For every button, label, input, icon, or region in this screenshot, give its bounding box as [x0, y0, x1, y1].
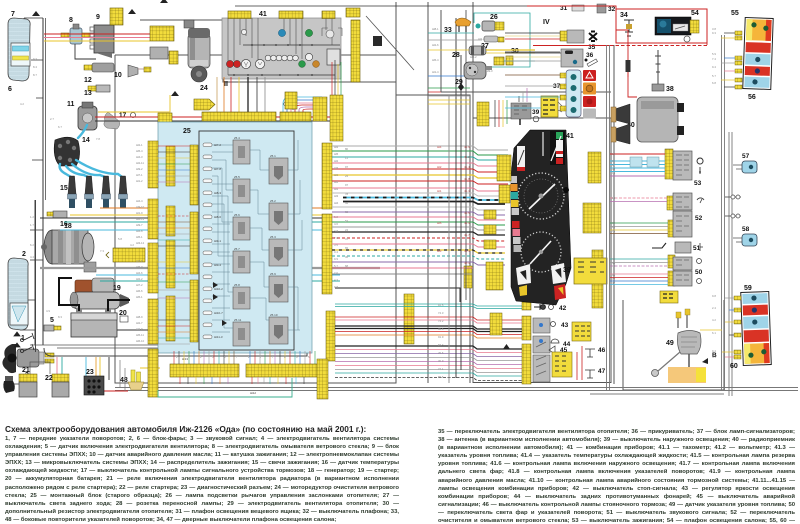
- svg-text:Ш8-3: Ш8-3: [214, 191, 221, 195]
- svg-text:77.1: 77.1: [438, 367, 444, 371]
- svg-text:28: 28: [452, 52, 460, 59]
- svg-text:24: 24: [345, 228, 349, 232]
- svg-text:15: 15: [60, 185, 68, 192]
- svg-text:Ш3: Ш3: [334, 166, 339, 170]
- svg-text:Ш12: Ш12: [250, 391, 256, 395]
- svg-text:51: 51: [693, 245, 701, 252]
- svg-text:59: 59: [744, 285, 752, 292]
- svg-text:10.5: 10.5: [438, 303, 444, 307]
- svg-text:Ш4: Ш4: [437, 145, 442, 149]
- svg-text:43: 43: [561, 322, 569, 329]
- svg-text:3.5: 3.5: [334, 243, 338, 247]
- svg-text:11: 11: [345, 156, 348, 160]
- svg-text:Ш2-1: Ш2-1: [136, 143, 143, 147]
- svg-text:3.4: 3.4: [334, 250, 338, 254]
- svg-text:12: 12: [84, 77, 92, 84]
- svg-text:57: 57: [742, 153, 750, 160]
- svg-text:49: 49: [666, 340, 674, 347]
- svg-text:Ш10-7: Ш10-7: [214, 311, 223, 315]
- svg-text:4.2: 4.2: [20, 102, 24, 106]
- svg-text:29.6: 29.6: [438, 351, 444, 355]
- svg-text:5.8: 5.8: [118, 237, 122, 241]
- svg-text:38: 38: [666, 86, 674, 93]
- svg-text:Ш4-6: Ш4-6: [136, 271, 143, 275]
- svg-text:55: 55: [731, 10, 739, 17]
- svg-text:Ш5-4: Ш5-4: [136, 149, 143, 153]
- svg-text:52: 52: [695, 215, 703, 222]
- svg-text:30: 30: [345, 255, 349, 259]
- svg-text:5.9: 5.9: [712, 52, 716, 56]
- svg-text:1.7: 1.7: [30, 223, 34, 227]
- svg-text:Ш1: Ш1: [437, 189, 442, 193]
- svg-text:14: 14: [612, 196, 616, 200]
- svg-text:30: 30: [511, 48, 519, 55]
- svg-text:21: 21: [22, 367, 30, 374]
- svg-text:5.7: 5.7: [334, 264, 338, 268]
- svg-text:41.1: 41.1: [464, 189, 470, 193]
- svg-text:Ш5-1: Ш5-1: [136, 235, 143, 239]
- svg-text:39: 39: [563, 267, 571, 274]
- svg-text:Ш8-2: Ш8-2: [470, 55, 477, 59]
- svg-text:9.8: 9.8: [334, 285, 338, 289]
- svg-text:9.3: 9.3: [33, 57, 37, 61]
- svg-text:25.4: 25.4: [234, 136, 240, 140]
- svg-text:47: 47: [598, 368, 606, 375]
- svg-text:17: 17: [119, 112, 127, 119]
- svg-text:41.2: 41.2: [464, 155, 470, 159]
- svg-text:42: 42: [559, 305, 567, 312]
- svg-text:Ш1: Ш1: [334, 187, 339, 191]
- svg-text:50: 50: [695, 269, 703, 276]
- svg-text:78: 78: [345, 192, 349, 196]
- svg-text:75: 75: [612, 229, 616, 233]
- svg-text:Ш3-12: Ш3-12: [136, 241, 145, 245]
- svg-text:10: 10: [114, 72, 122, 79]
- svg-text:9.4: 9.4: [712, 65, 716, 69]
- svg-text:Ш9-7: Ш9-7: [136, 223, 143, 227]
- svg-text:18: 18: [612, 171, 616, 175]
- svg-text:Ш6-6: Ш6-6: [136, 289, 143, 293]
- svg-text:Ш5-3: Ш5-3: [136, 265, 143, 269]
- svg-text:2: 2: [22, 251, 26, 258]
- svg-text:53: 53: [345, 219, 349, 223]
- svg-text:25.8: 25.8: [234, 283, 240, 287]
- svg-text:19: 19: [612, 152, 616, 156]
- svg-text:86.6: 86.6: [438, 375, 444, 379]
- svg-text:9: 9: [96, 14, 100, 21]
- svg-text:Ш2-7: Ш2-7: [136, 321, 143, 325]
- svg-text:Ш4-3: Ш4-3: [136, 155, 143, 159]
- svg-text:60: 60: [730, 363, 738, 370]
- svg-text:7.8: 7.8: [334, 236, 338, 240]
- svg-text:37: 37: [553, 83, 561, 90]
- svg-text:Ш5-4: Ш5-4: [432, 58, 439, 62]
- svg-text:Ш2-2: Ш2-2: [478, 37, 485, 41]
- svg-text:92: 92: [345, 210, 349, 214]
- svg-text:9.9: 9.9: [334, 257, 338, 261]
- svg-text:Ш2: Ш2: [334, 159, 339, 163]
- svg-text:25.9: 25.9: [270, 272, 276, 276]
- svg-text:Ш11-3: Ш11-3: [214, 335, 223, 339]
- svg-text:8.7: 8.7: [33, 73, 37, 77]
- svg-text:56: 56: [748, 94, 756, 101]
- svg-text:19: 19: [113, 285, 121, 292]
- svg-text:9.4: 9.4: [712, 349, 716, 353]
- svg-text:9.3: 9.3: [712, 31, 716, 35]
- svg-text:41.6: 41.6: [464, 145, 470, 149]
- svg-text:Ш9-3: Ш9-3: [486, 69, 493, 73]
- svg-text:53: 53: [694, 180, 702, 187]
- svg-text:24: 24: [345, 174, 349, 178]
- svg-text:Ш4-12: Ш4-12: [136, 217, 145, 221]
- svg-text:Ш1: Ш1: [334, 173, 339, 177]
- svg-text:4.3: 4.3: [334, 278, 338, 282]
- svg-text:5: 5: [50, 317, 54, 324]
- svg-text:7: 7: [11, 11, 15, 18]
- svg-text:42.1: 42.1: [464, 261, 470, 265]
- svg-text:25.2: 25.2: [270, 199, 276, 203]
- svg-text:Ш7-6: Ш7-6: [136, 259, 143, 263]
- svg-text:41.5: 41.5: [464, 211, 470, 215]
- svg-text:58: 58: [742, 226, 750, 233]
- svg-text:34: 34: [620, 12, 628, 19]
- svg-text:46: 46: [598, 347, 606, 354]
- svg-text:68: 68: [345, 264, 349, 268]
- svg-text:47: 47: [345, 237, 349, 241]
- svg-text:8.4: 8.4: [33, 65, 37, 69]
- svg-text:Ш4: Ш4: [334, 201, 339, 205]
- svg-text:2.7: 2.7: [50, 117, 54, 121]
- svg-text:Ш5-1: Ш5-1: [136, 295, 143, 299]
- svg-text:4.2: 4.2: [130, 243, 134, 247]
- svg-text:14: 14: [82, 137, 90, 144]
- svg-text:6: 6: [8, 86, 12, 93]
- svg-text:4.6: 4.6: [334, 222, 338, 226]
- svg-text:25.6: 25.6: [234, 213, 240, 217]
- svg-text:41.9: 41.9: [464, 221, 470, 225]
- svg-text:Ш1-9: Ш1-9: [136, 211, 143, 215]
- svg-text:Ш2: Ш2: [437, 165, 442, 169]
- svg-text:Ш3: Ш3: [334, 145, 339, 149]
- svg-text:Ш2-2: Ш2-2: [136, 277, 143, 281]
- svg-text:II: II: [224, 81, 228, 88]
- svg-text:1.2: 1.2: [30, 215, 34, 219]
- svg-text:IV: IV: [543, 19, 550, 26]
- svg-text:Ш2-6: Ш2-6: [432, 43, 439, 47]
- svg-text:Ш8-6: Ш8-6: [214, 215, 221, 219]
- svg-text:Ш6-10: Ш6-10: [136, 339, 145, 343]
- svg-text:Ш4-8: Ш4-8: [136, 229, 143, 233]
- svg-text:8.3: 8.3: [58, 315, 62, 319]
- svg-text:74.2: 74.2: [438, 319, 444, 323]
- svg-text:Ш2: Ш2: [334, 180, 339, 184]
- svg-text:Ш3: Ш3: [437, 249, 442, 253]
- svg-text:4.8: 4.8: [334, 229, 338, 233]
- svg-text:Ш9-4: Ш9-4: [214, 263, 221, 267]
- svg-text:Ш5-11: Ш5-11: [136, 333, 144, 337]
- svg-text:Ш5: Ш5: [437, 221, 442, 225]
- svg-text:7.3: 7.3: [100, 249, 104, 253]
- svg-text:87.4: 87.4: [438, 343, 444, 347]
- svg-text:39: 39: [532, 109, 540, 116]
- svg-text:65: 65: [345, 246, 349, 250]
- svg-text:Ш2-9: Ш2-9: [136, 327, 143, 331]
- svg-text:18: 18: [64, 223, 72, 230]
- svg-text:9.8: 9.8: [712, 294, 716, 298]
- svg-text:25.7: 25.7: [234, 247, 240, 251]
- svg-text:37: 37: [612, 281, 616, 285]
- svg-text:41: 41: [566, 133, 574, 140]
- svg-text:4.9: 4.9: [46, 309, 50, 313]
- svg-text:6.2: 6.2: [30, 243, 34, 247]
- svg-text:54: 54: [691, 10, 699, 17]
- svg-text:Ш8-9: Ш8-9: [136, 315, 143, 319]
- svg-text:Ш7-1: Ш7-1: [136, 173, 143, 177]
- svg-text:45: 45: [612, 261, 616, 265]
- svg-text:5.7: 5.7: [712, 74, 716, 78]
- svg-text:Ш7-2: Ш7-2: [214, 143, 221, 147]
- svg-text:41.3: 41.3: [464, 249, 470, 253]
- svg-text:80: 80: [345, 147, 349, 151]
- svg-text:7.4: 7.4: [712, 57, 716, 61]
- svg-text:41: 41: [259, 11, 267, 18]
- svg-text:Ш3: Ш3: [334, 194, 339, 198]
- svg-text:Ш7-8: Ш7-8: [214, 167, 221, 171]
- svg-text:97: 97: [345, 165, 349, 169]
- svg-text:Ш1-4: Ш1-4: [432, 70, 439, 74]
- svg-text:7.6: 7.6: [334, 271, 338, 275]
- svg-text:Ш9-2: Ш9-2: [136, 167, 143, 171]
- svg-text:2.4: 2.4: [712, 306, 716, 310]
- svg-text:6.1: 6.1: [712, 331, 716, 335]
- svg-text:Ш1-2: Ш1-2: [136, 179, 143, 183]
- svg-text:25.11: 25.11: [234, 318, 242, 322]
- svg-text:Ш9-1: Ш9-1: [214, 239, 221, 243]
- svg-text:4.4: 4.4: [30, 255, 34, 259]
- svg-text:4.1: 4.1: [712, 355, 716, 359]
- svg-text:13: 13: [84, 90, 92, 97]
- svg-text:22: 22: [45, 375, 53, 382]
- svg-text:25: 25: [183, 128, 191, 135]
- svg-text:90.5: 90.5: [438, 327, 444, 331]
- svg-text:4.2: 4.2: [712, 318, 716, 322]
- svg-text:24: 24: [200, 85, 208, 92]
- svg-text:41.8: 41.8: [464, 177, 470, 181]
- svg-text:11: 11: [67, 101, 75, 108]
- svg-text:41.4: 41.4: [464, 165, 470, 169]
- svg-text:25.5: 25.5: [234, 175, 240, 179]
- svg-text:6.8: 6.8: [712, 81, 716, 85]
- svg-text:7.8: 7.8: [96, 137, 100, 141]
- svg-text:Ш4-4: Ш4-4: [136, 199, 143, 203]
- svg-text:Ш10-2: Ш10-2: [214, 287, 223, 291]
- svg-text:Ш2-11: Ш2-11: [136, 161, 144, 165]
- svg-text:8: 8: [69, 17, 73, 24]
- svg-text:36: 36: [586, 52, 594, 59]
- svg-text:25.1: 25.1: [270, 154, 276, 158]
- svg-text:23: 23: [86, 369, 94, 376]
- svg-text:32: 32: [608, 6, 616, 13]
- svg-text:5.2: 5.2: [334, 215, 338, 219]
- svg-text:Ш7-2: Ш7-2: [136, 283, 143, 287]
- svg-text:30.9: 30.9: [438, 359, 444, 363]
- svg-text:25.3: 25.3: [270, 235, 276, 239]
- svg-text:Ш8-1: Ш8-1: [432, 27, 439, 31]
- svg-text:26: 26: [490, 14, 498, 21]
- svg-text:44: 44: [345, 201, 349, 205]
- svg-text:97: 97: [345, 183, 349, 187]
- svg-text:48: 48: [120, 377, 128, 384]
- svg-text:25.10: 25.10: [270, 313, 278, 317]
- svg-text:6.7: 6.7: [58, 125, 62, 129]
- svg-text:74.3: 74.3: [438, 311, 444, 315]
- svg-text:Ш9-10: Ш9-10: [136, 205, 145, 209]
- svg-text:Ш5: Ш5: [334, 152, 339, 156]
- svg-text:91.9: 91.9: [438, 335, 444, 339]
- svg-text:41.7: 41.7: [464, 233, 470, 237]
